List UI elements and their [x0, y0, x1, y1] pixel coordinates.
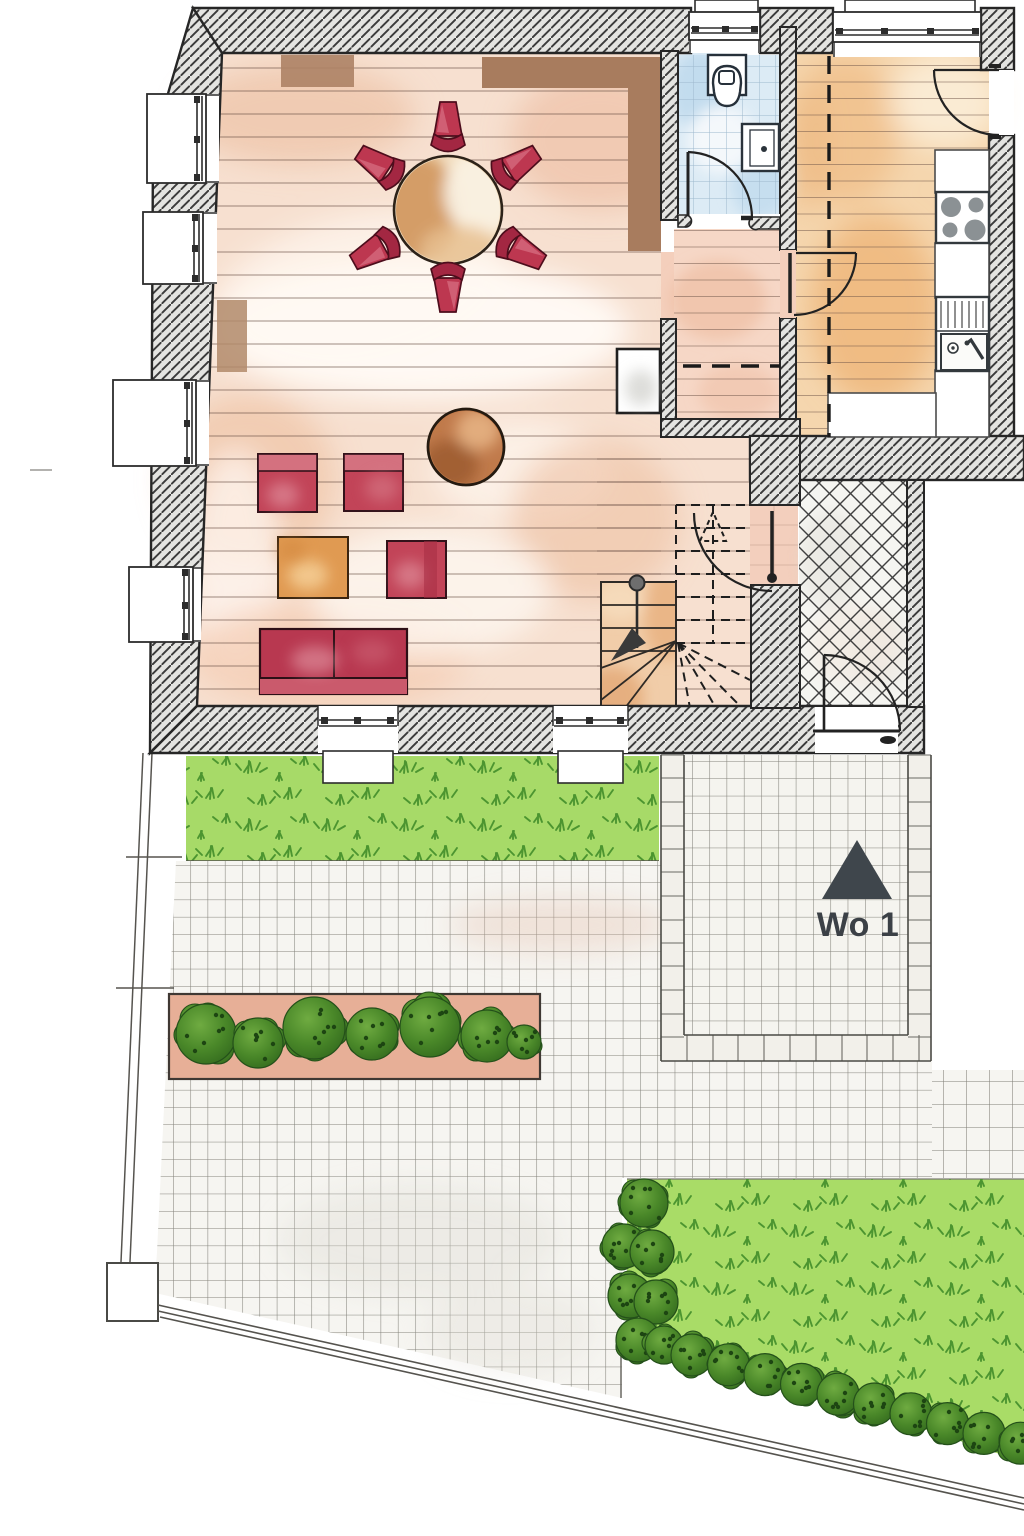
svg-text:Wo 1: Wo 1: [817, 906, 900, 944]
